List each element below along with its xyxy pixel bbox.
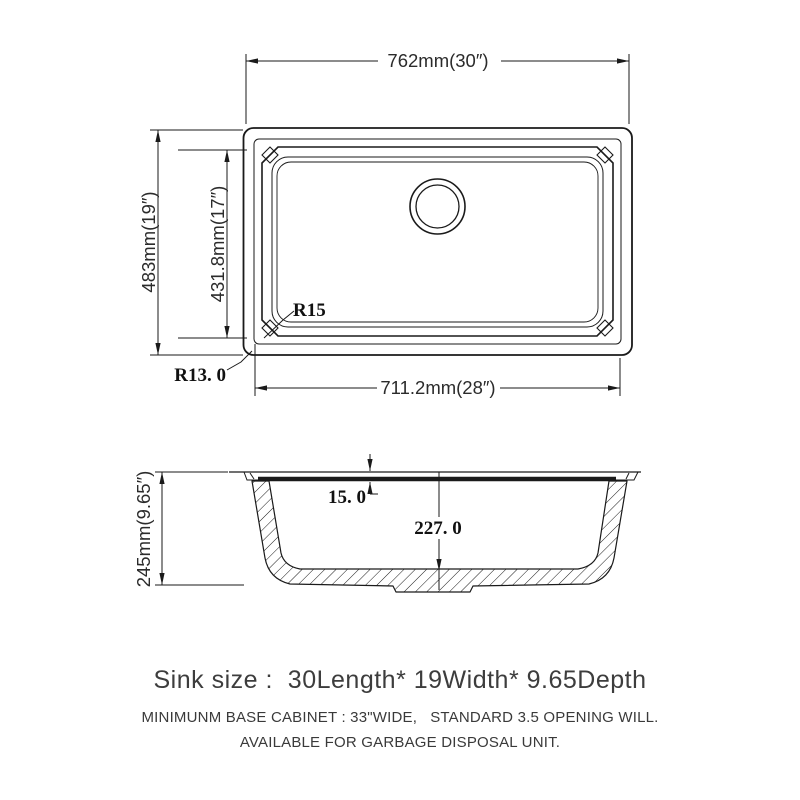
r15-label: R15 [293, 300, 326, 321]
r13-label: R13. 0 [174, 365, 226, 386]
dim-label-depth: 245mm(9.65″) [133, 471, 154, 588]
sink-dimension-drawing: 762mm(30″) 483mm(19″) 431.8mm(17″) 711.2… [0, 0, 800, 800]
dim-top-width: 762mm(30″) [246, 50, 629, 124]
callout-r13: R13. 0 [174, 351, 252, 386]
left-rim-lip [244, 472, 258, 480]
garbage-disposal-note: AVAILABLE FOR GARBAGE DISPOSAL UNIT. [0, 734, 800, 751]
dim-bowl-height: 431.8mm(17″) [178, 150, 247, 338]
dim-label-bowl-width: 711.2mm(28″) [380, 377, 495, 398]
dim-label-top-width: 762mm(30″) [387, 50, 488, 71]
sink-size-text: Sink size : 30Length* 19Width* 9.65Depth [0, 666, 800, 695]
base-cabinet-note: MINIMUNM BASE CABINET : 33"WIDE, STANDAR… [0, 709, 800, 726]
dim-label-overall-height: 483mm(19″) [138, 191, 159, 292]
bowl-depth-label: 227. 0 [414, 518, 462, 539]
dim-depth: 245mm(9.65″) [133, 471, 244, 588]
rim-thickness-label: 15. 0 [328, 487, 366, 508]
dim-label-bowl-height: 431.8mm(17″) [207, 186, 228, 303]
bowl-bottom-edge-inner [277, 162, 598, 322]
drain-icon [410, 179, 465, 234]
right-rim-lip [616, 472, 638, 480]
dim-bowl-width: 711.2mm(28″) [255, 344, 620, 398]
